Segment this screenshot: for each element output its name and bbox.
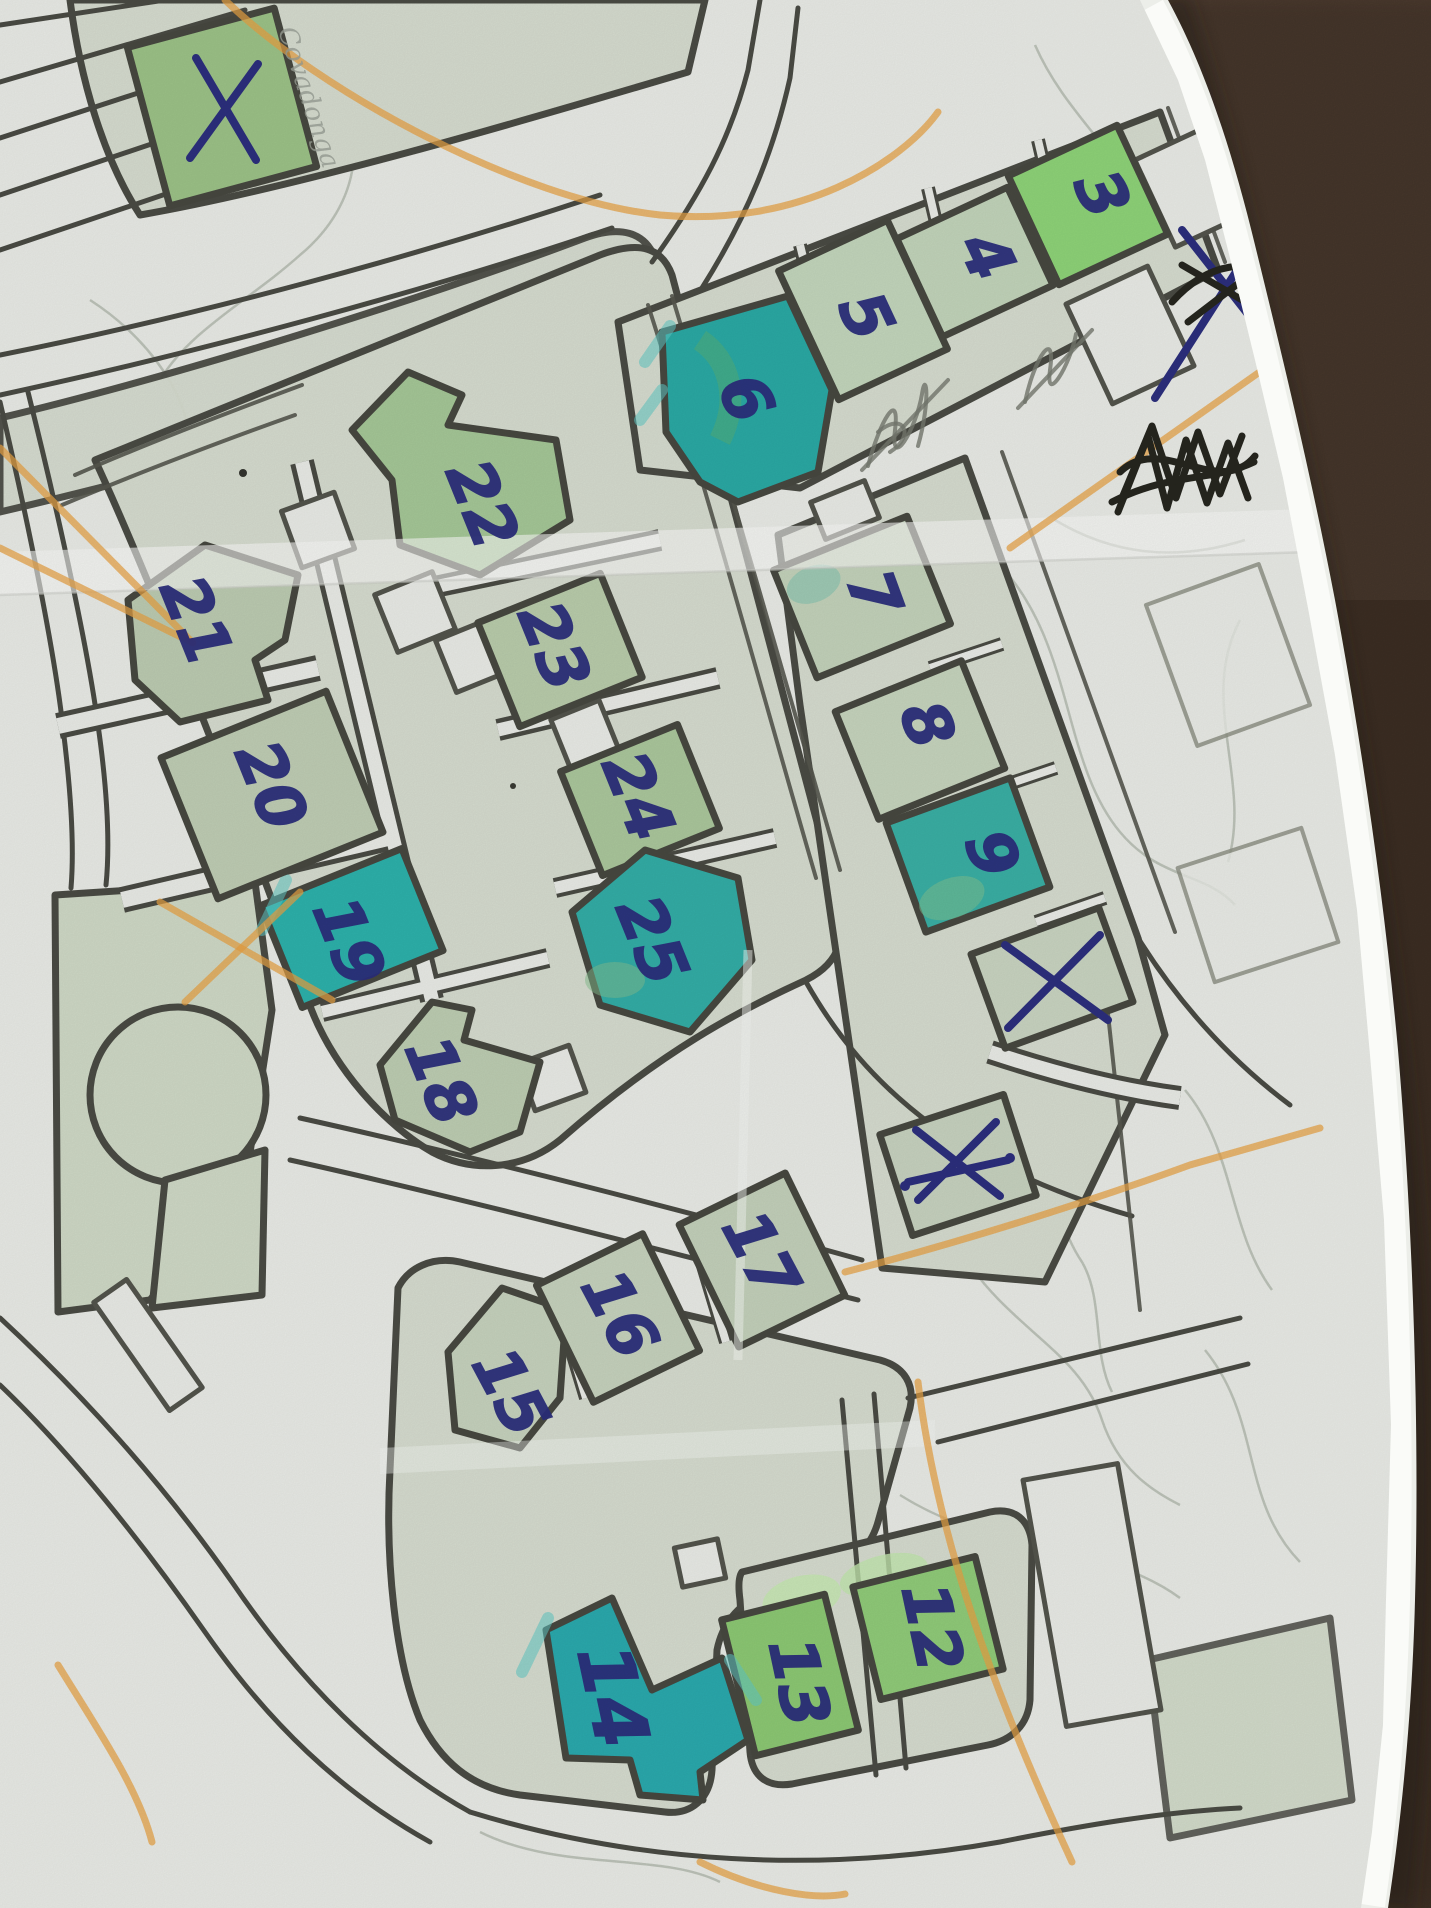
photo-of-annotated-map: Covadonga 3 4 5 6 7 8 9 12 13 14 15 16 1… (0, 0, 1431, 1908)
map-photo: Covadonga 3 4 5 6 7 8 9 12 13 14 15 16 1… (0, 0, 1431, 1908)
